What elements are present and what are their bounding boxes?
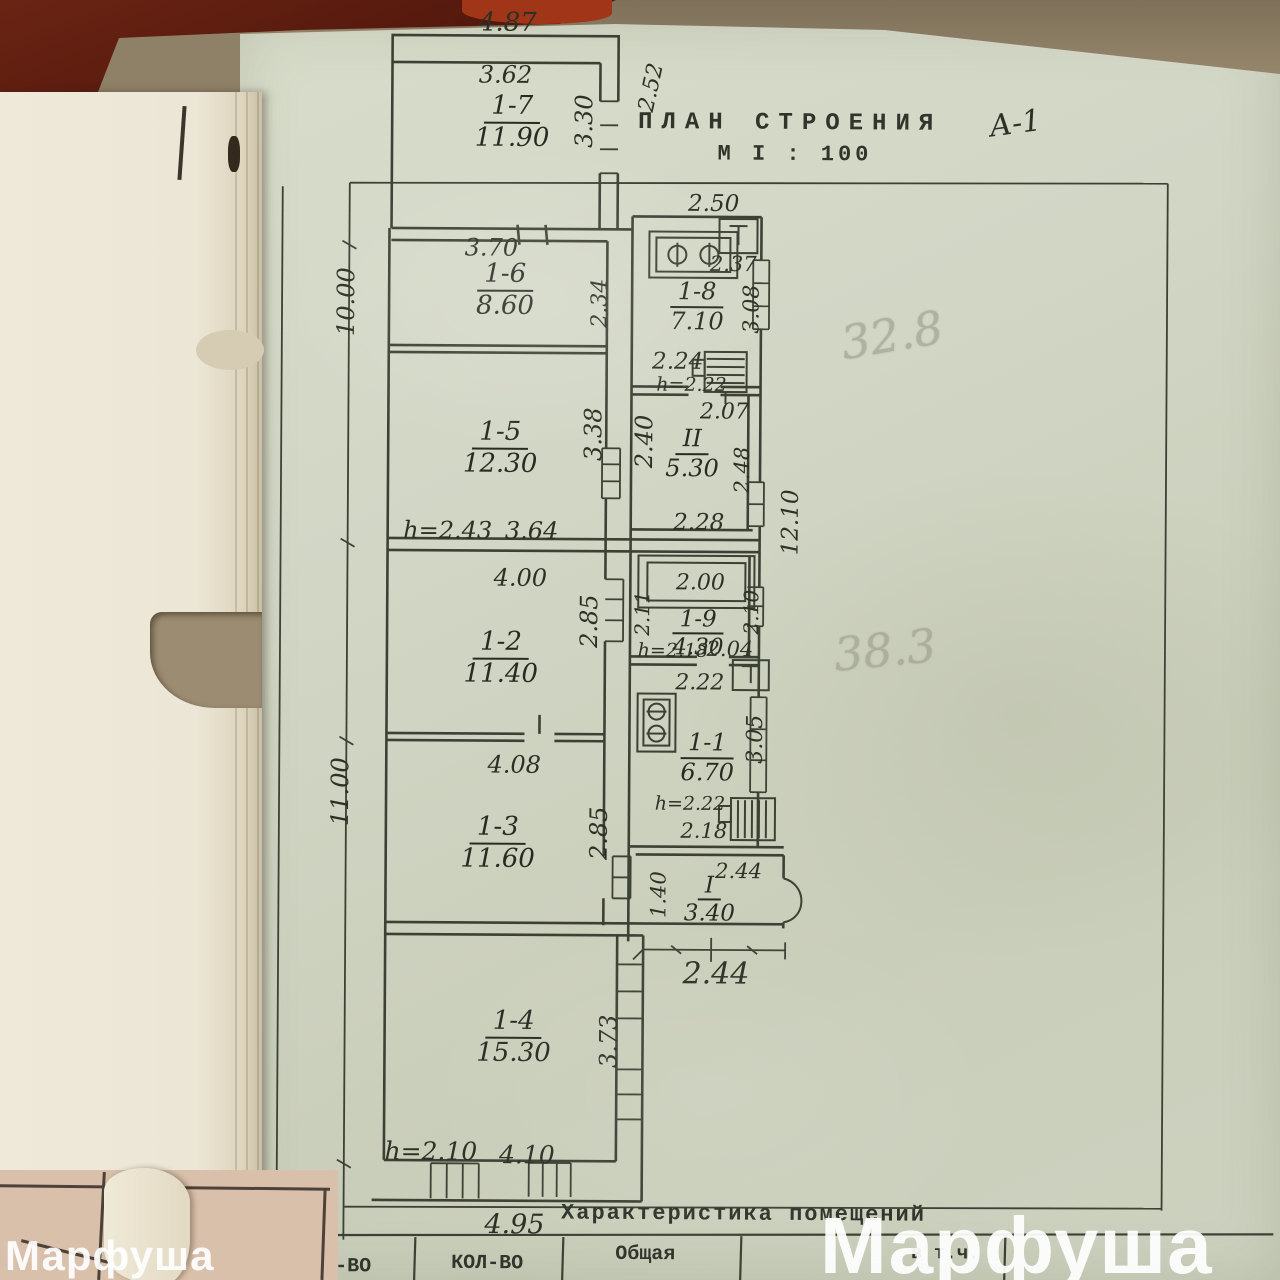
room-area: 11.90 bbox=[475, 123, 550, 153]
table-col-quantity-2: КОЛ-ВО bbox=[451, 1252, 523, 1275]
room-number: 1-2 bbox=[473, 628, 529, 660]
dim-room1-8-top-width: 2.50 bbox=[688, 191, 739, 217]
room-area: 11.60 bbox=[460, 844, 535, 874]
dim-room1-5-height: 3.38 bbox=[579, 407, 607, 461]
dim-room1-9-right-height: 2.10 bbox=[739, 590, 763, 635]
room-label-II: II5.30 bbox=[665, 425, 719, 483]
room-area: 3.40 bbox=[684, 901, 735, 928]
dim-right-wall-total: 12.10 bbox=[778, 489, 804, 555]
dim-porch-left-height: 1.40 bbox=[646, 871, 670, 918]
dim-room1-9-left-height: 2.11 bbox=[630, 591, 654, 636]
sheet-frame bbox=[276, 178, 1167, 1244]
room-label-1-2: 1-211.40 bbox=[463, 628, 538, 690]
room-area: 6.70 bbox=[680, 759, 734, 787]
dim-room1-3-height: 2.85 bbox=[585, 806, 613, 860]
ceiling-height-1-9: h=2.18 bbox=[638, 639, 709, 661]
ceiling-height-1-4: h=2.10 bbox=[384, 1136, 477, 1166]
ceiling-height-1-5: h=2.43 bbox=[403, 516, 492, 545]
litera-annotation: А-1 bbox=[987, 103, 1043, 145]
pencil-note-lower: 38.3 bbox=[831, 618, 938, 682]
room-number: 1-9 bbox=[673, 606, 724, 635]
table-col-total: Общая bbox=[615, 1243, 675, 1266]
room-area: 8.60 bbox=[476, 291, 534, 321]
dim-porch-top-width: 2.44 bbox=[715, 859, 762, 883]
dim-closet-width: 2.00 bbox=[676, 570, 725, 595]
dim-room1-1-top-width: 2.22 bbox=[675, 670, 724, 695]
dim-room1-5-width: 3.64 bbox=[505, 517, 559, 545]
dim-top-width: 4.87 bbox=[479, 7, 537, 37]
dim-roomII-bottom-width: 2.28 bbox=[673, 510, 724, 536]
room-number: 1-4 bbox=[486, 1007, 542, 1039]
room-area: 7.10 bbox=[670, 308, 724, 336]
ceiling-height-1-1: h=2.22 bbox=[655, 793, 726, 815]
dim-room1-6-height: 2.34 bbox=[587, 279, 612, 328]
room-number: 1-8 bbox=[671, 278, 724, 308]
dim-room1-4-height: 3.73 bbox=[594, 1014, 622, 1068]
dim-bottom-width: 4.95 bbox=[484, 1209, 544, 1240]
room-label-1-5: 1-512.30 bbox=[463, 418, 538, 480]
room-label-1-4: 1-415.30 bbox=[476, 1007, 551, 1069]
ceiling-height-1-8: h=2.22 bbox=[656, 374, 727, 396]
room-area: 15.30 bbox=[476, 1038, 551, 1068]
dim-room1-6-width: 3.70 bbox=[465, 233, 519, 261]
dim-left-wall-upper: 10.00 bbox=[332, 267, 360, 336]
watermark-bottom-left: Марфуша bbox=[5, 1232, 214, 1280]
stove-symbol-kitchen-1-1 bbox=[637, 693, 675, 751]
room-area: 12.30 bbox=[463, 449, 538, 479]
room-area: 5.30 bbox=[665, 455, 719, 483]
room-label-1-1: 1-16.70 bbox=[680, 729, 734, 787]
room-number: 1-5 bbox=[472, 418, 528, 450]
photo-of-floor-plan-document: ПЛАН СТРОЕНИЯ М I : 100 А-1 1-711.90 1-6… bbox=[0, 0, 1280, 1280]
dim-room1-1-bottom-width: 2.18 bbox=[680, 819, 727, 843]
dim-room1-7-height: 3.30 bbox=[570, 94, 598, 148]
room-label-1-8: 1-87.10 bbox=[670, 278, 724, 336]
dim-room1-9-bottom-width: 2.04 bbox=[707, 637, 754, 661]
room-label-1-6: 1-68.60 bbox=[476, 260, 534, 322]
dim-left-wall-lower: 11.00 bbox=[326, 757, 354, 826]
torn-paper-spot bbox=[196, 330, 264, 370]
underlying-page-mark bbox=[228, 136, 240, 172]
room-label-1-7: 1-711.90 bbox=[475, 92, 550, 154]
dim-roomII-top-width: 2.07 bbox=[700, 399, 749, 424]
watermark-bottom-right: Марфуша bbox=[820, 1200, 1213, 1280]
dim-room1-4-width: 4.10 bbox=[499, 1140, 555, 1169]
dim-room1-3-width: 4.08 bbox=[487, 751, 541, 779]
dim-room1-7-width: 3.62 bbox=[479, 60, 533, 88]
dim-roomII-left-height: 2.40 bbox=[630, 415, 658, 469]
room-area: 11.40 bbox=[463, 659, 538, 689]
sink-symbol-kitchen-1-8 bbox=[719, 219, 757, 253]
dim-room1-2-width: 4.00 bbox=[494, 564, 548, 592]
room-number: 1-3 bbox=[470, 813, 526, 845]
dim-room1-1-height: 3.05 bbox=[743, 715, 768, 764]
entrance-door-arc bbox=[783, 878, 801, 922]
dim-room1-2-height: 2.85 bbox=[575, 594, 603, 648]
plan-scale: М I : 100 bbox=[717, 141, 872, 167]
room-number: 1-7 bbox=[484, 92, 540, 124]
dim-roomII-right-height: 2.48 bbox=[730, 447, 754, 494]
room-label-1-3: 1-311.60 bbox=[460, 812, 535, 874]
plan-title: ПЛАН СТРОЕНИЯ bbox=[638, 109, 942, 138]
dim-room1-8-inner-width: 2.37 bbox=[710, 252, 757, 276]
dim-room1-8-height: 3.08 bbox=[739, 285, 764, 334]
room-number: 1-6 bbox=[477, 260, 533, 292]
dim-porch-bottom: 2.44 bbox=[682, 956, 749, 991]
room-number: 1-1 bbox=[681, 729, 734, 759]
room-number: II bbox=[676, 425, 709, 455]
dim-room1-8-bottom-width: 2.24 bbox=[652, 349, 703, 375]
